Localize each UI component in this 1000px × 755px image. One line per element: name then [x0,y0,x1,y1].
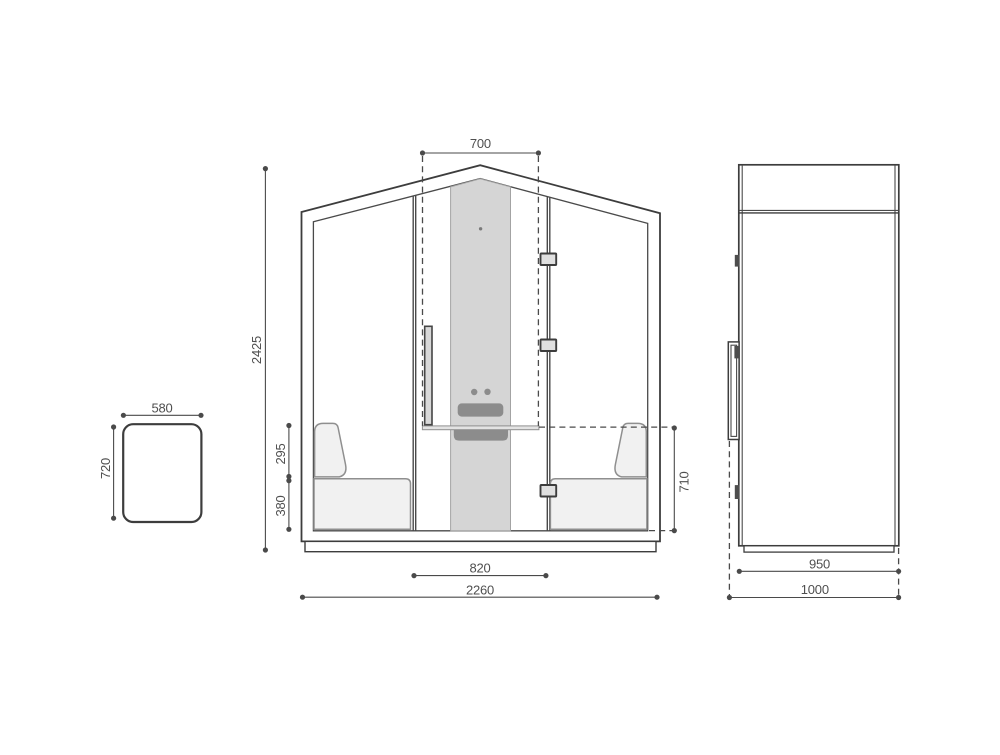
svg-text:720: 720 [98,458,113,479]
svg-text:820: 820 [469,560,490,575]
svg-text:710: 710 [677,471,692,492]
svg-text:1000: 1000 [801,582,829,597]
svg-text:2260: 2260 [466,582,494,597]
svg-text:950: 950 [809,557,830,572]
svg-text:580: 580 [151,400,172,415]
svg-text:700: 700 [470,136,491,151]
svg-text:295: 295 [273,443,288,464]
svg-text:2425: 2425 [249,336,264,364]
svg-text:380: 380 [273,495,288,516]
